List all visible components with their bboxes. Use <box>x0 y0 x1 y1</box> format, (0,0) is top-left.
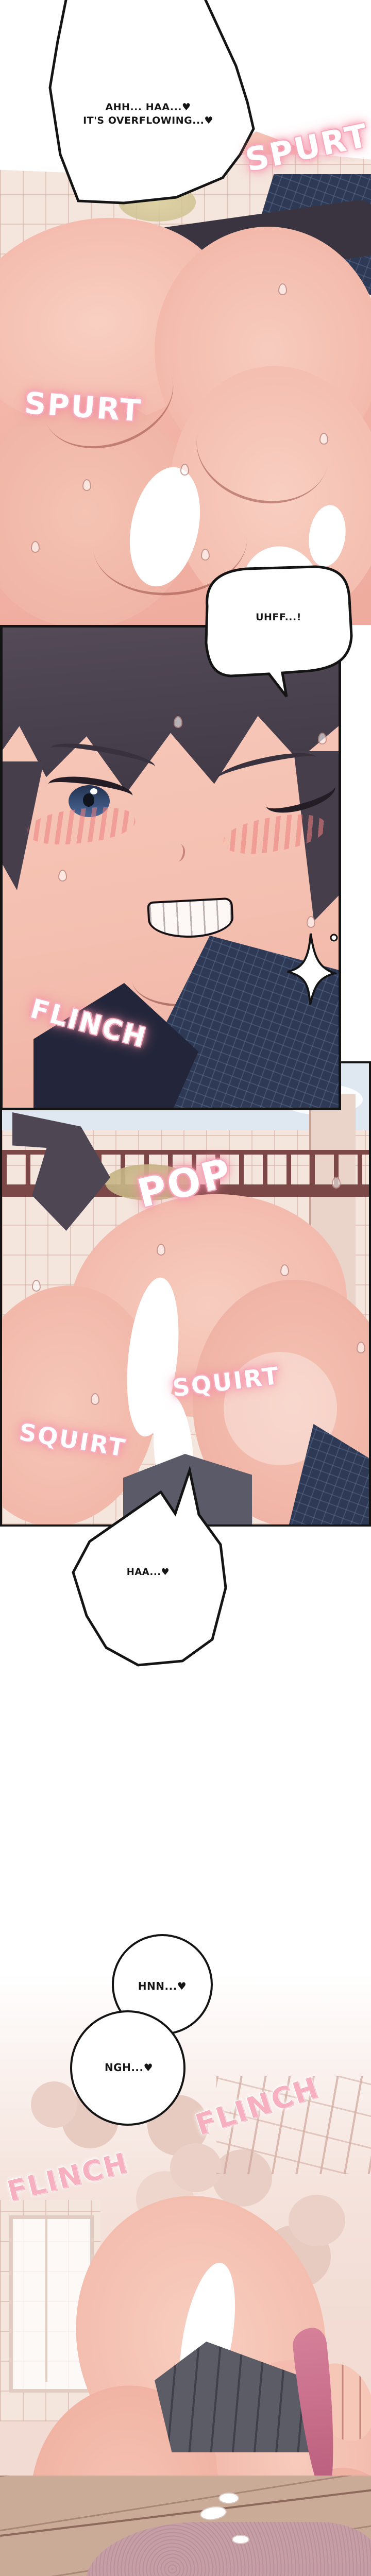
sweat-drop-icon <box>180 464 189 476</box>
sweat-drop-icon <box>32 1280 41 1292</box>
bubble-text-hnn: HNN...♥ <box>129 1979 196 1993</box>
sweat-drop-icon <box>318 733 327 744</box>
bubble-text-uhff: UHFF...! <box>241 611 316 624</box>
eye-pupil <box>83 793 94 807</box>
bubble-text-haa: HAA...♥ <box>116 1566 180 1579</box>
blush-left <box>26 802 137 849</box>
sweat-drop-icon <box>91 1393 99 1405</box>
sweat-drop-icon <box>58 870 67 882</box>
artwork-panel-top <box>0 129 371 625</box>
window-mullion <box>45 2219 47 2382</box>
nose-line <box>172 843 186 862</box>
garden-scene-panel <box>0 1973 371 2576</box>
sweat-drop-icon <box>157 1244 165 1256</box>
sweat-drop-icon <box>174 716 182 728</box>
sweat-drop-icon <box>258 646 266 658</box>
foliage-cluster <box>170 2143 222 2192</box>
foliage-cluster <box>31 2081 77 2128</box>
sweat-drop-icon <box>278 283 287 295</box>
sweat-drop-icon <box>82 479 91 491</box>
outdoor-scene-panel <box>0 1061 371 1527</box>
man-face-panel <box>0 625 341 1110</box>
white-droplet <box>232 2535 249 2544</box>
bush-shape <box>119 183 196 222</box>
white-droplet <box>218 2493 239 2504</box>
sweat-drop-icon <box>201 549 210 561</box>
sweat-drop-icon <box>357 1342 365 1353</box>
webtoon-page: AHH... HAA...♥ IT'S OVERFLOWING...♥ UHFF… <box>0 0 371 2576</box>
sweat-drop-icon <box>31 541 40 553</box>
foliage-cluster <box>289 2195 345 2246</box>
eye-glint <box>90 788 97 794</box>
gritted-teeth-mouth <box>147 897 234 940</box>
bubble-text-overflowing: AHH... HAA...♥ IT'S OVERFLOWING...♥ <box>77 101 219 127</box>
bubble-line: AHH... HAA...♥ <box>77 101 219 114</box>
sweat-drop-icon <box>332 1177 341 1189</box>
sweat-drop-icon <box>280 1264 289 1276</box>
bubble-line: IT'S OVERFLOWING...♥ <box>77 114 219 128</box>
bubble-text-ngh: NGH...♥ <box>95 2061 162 2075</box>
sweat-drop-icon <box>319 433 328 445</box>
sweat-drop-icon <box>307 916 315 928</box>
